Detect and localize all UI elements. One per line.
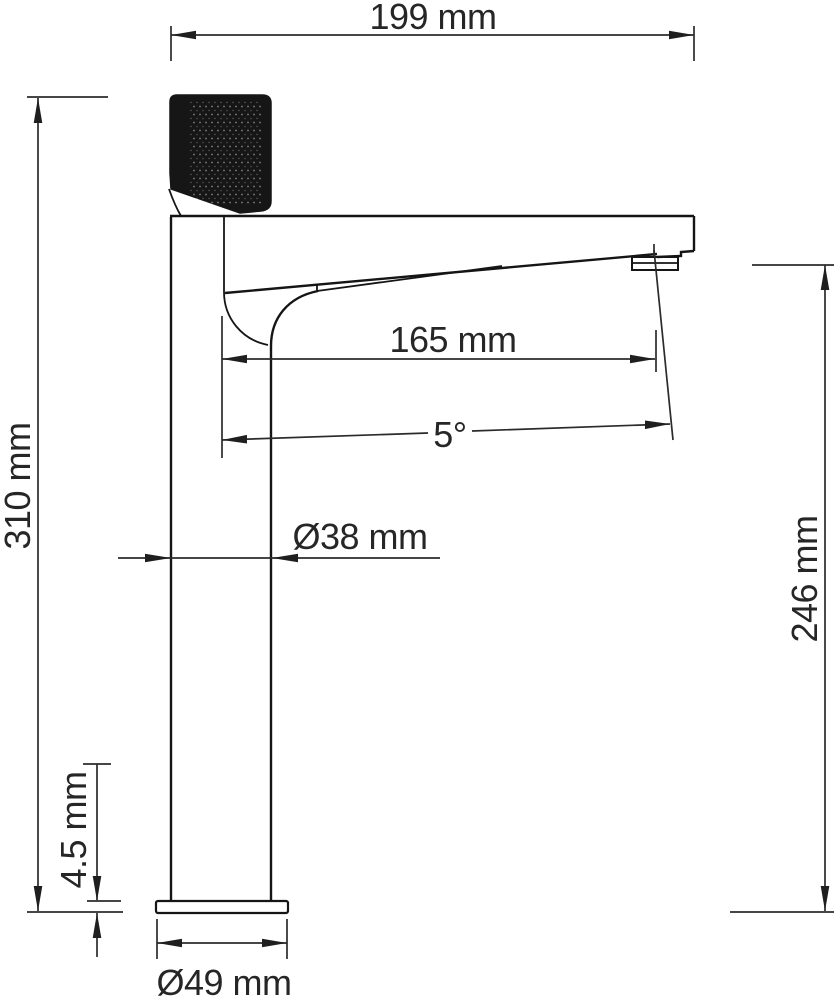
faucet-technical-drawing: 199 mm 310 mm 165 mm 5° Ø38 mm bbox=[0, 0, 836, 1000]
dim-label-spout-angle: 5° bbox=[433, 414, 466, 455]
handle-lever-edge bbox=[169, 189, 181, 216]
dim-base-thickness: 4.5 mm bbox=[53, 764, 121, 957]
dim-outlet-height: 246 mm bbox=[730, 265, 834, 912]
spout-scoop-curve bbox=[224, 292, 268, 345]
arrow-left bbox=[222, 355, 247, 363]
arrow-left bbox=[157, 939, 182, 947]
column-right-edge bbox=[271, 291, 318, 901]
faucet-body bbox=[156, 95, 694, 913]
dim-label-spout-reach: 165 mm bbox=[389, 319, 516, 360]
dim-base-diameter: Ø49 mm bbox=[156, 919, 291, 1000]
faucet-handle bbox=[169, 95, 271, 216]
arrow-right bbox=[262, 939, 287, 947]
dim-label-total-width: 199 mm bbox=[369, 0, 496, 37]
arrow-up bbox=[34, 98, 43, 123]
arrow-right-into-left-edge bbox=[145, 554, 171, 562]
dim-label-total-height: 310 mm bbox=[0, 422, 38, 549]
arrow-up bbox=[821, 265, 830, 290]
dim-label-outlet-height: 246 mm bbox=[784, 515, 825, 642]
arrow-right bbox=[669, 31, 694, 39]
arrow-up bbox=[93, 913, 102, 938]
dim-label-base-thickness: 4.5 mm bbox=[53, 771, 94, 888]
dim-label-base-diameter: Ø49 mm bbox=[156, 962, 291, 1000]
arrow-down bbox=[821, 886, 830, 911]
dim-total-width: 199 mm bbox=[171, 0, 694, 61]
arrow-left bbox=[171, 31, 196, 39]
dim-label-body-diameter: Ø38 mm bbox=[292, 516, 427, 557]
base-plate bbox=[156, 901, 288, 913]
spout-underside-inner bbox=[317, 266, 502, 291]
handle-knurling bbox=[190, 100, 262, 204]
technical-drawing-page: 199 mm 310 mm 165 mm 5° Ø38 mm bbox=[0, 0, 836, 1000]
dim-body-diameter: Ø38 mm bbox=[118, 516, 440, 562]
arrow-right bbox=[630, 355, 655, 363]
arrow-down bbox=[34, 886, 43, 911]
